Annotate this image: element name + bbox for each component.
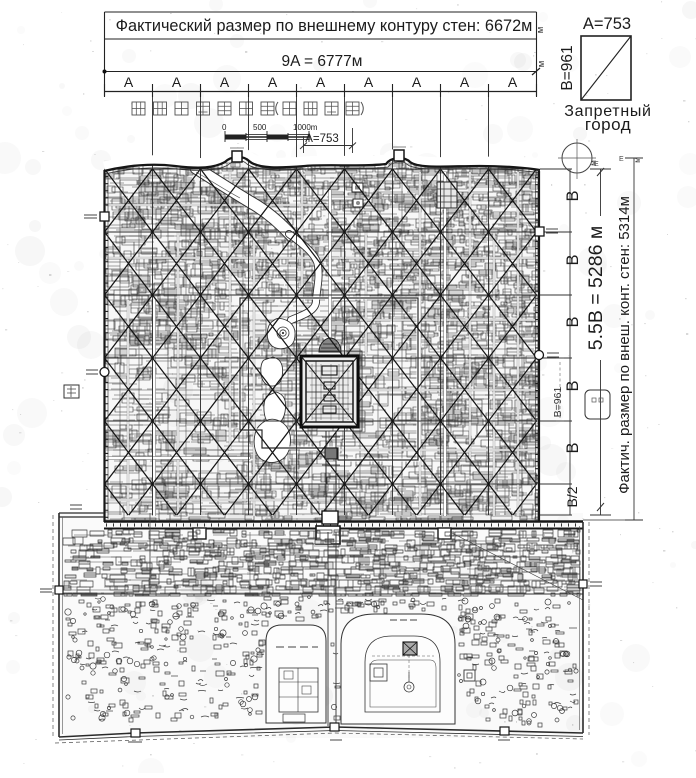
svg-text:м: м [633,157,642,163]
svg-text:9A = 6777м: 9A = 6777м [282,53,363,70]
svg-text:A: A [172,74,182,90]
svg-text:A: A [316,74,326,90]
svg-text:A=753: A=753 [305,133,339,145]
svg-text:B: B [564,190,582,201]
svg-text:B: B [564,380,582,391]
svg-text:A: A [460,74,470,90]
svg-text:B=961: B=961 [552,387,564,418]
svg-text:B/2: B/2 [564,486,580,507]
svg-text:A: A [364,74,374,90]
svg-text:B=961: B=961 [559,45,576,90]
svg-text:м: м [536,61,547,68]
svg-text:500: 500 [253,123,267,132]
svg-text:Фактич. размер по внеш. конт.: Фактич. размер по внеш. конт. стен: 5314… [616,196,633,494]
svg-text:0: 0 [222,123,227,132]
svg-text:Фактический размер по внешнему: Фактический размер по внешнему контуру с… [116,17,533,35]
svg-text:A: A [220,74,230,90]
svg-text:A: A [268,74,278,90]
svg-text:м: м [535,27,546,34]
svg-text:A: A [508,74,518,90]
svg-text:B: B [564,316,582,327]
svg-text:B: B [564,442,582,453]
svg-text:Е: Е [619,156,624,163]
svg-text:A=753: A=753 [583,15,631,33]
svg-text:город: город [585,115,631,134]
svg-text:м: м [589,160,598,166]
svg-text:5.5B = 5286 м: 5.5B = 5286 м [585,226,607,351]
svg-text:A: A [124,74,134,90]
svg-text:A: A [412,74,422,90]
svg-text:B: B [564,254,582,265]
